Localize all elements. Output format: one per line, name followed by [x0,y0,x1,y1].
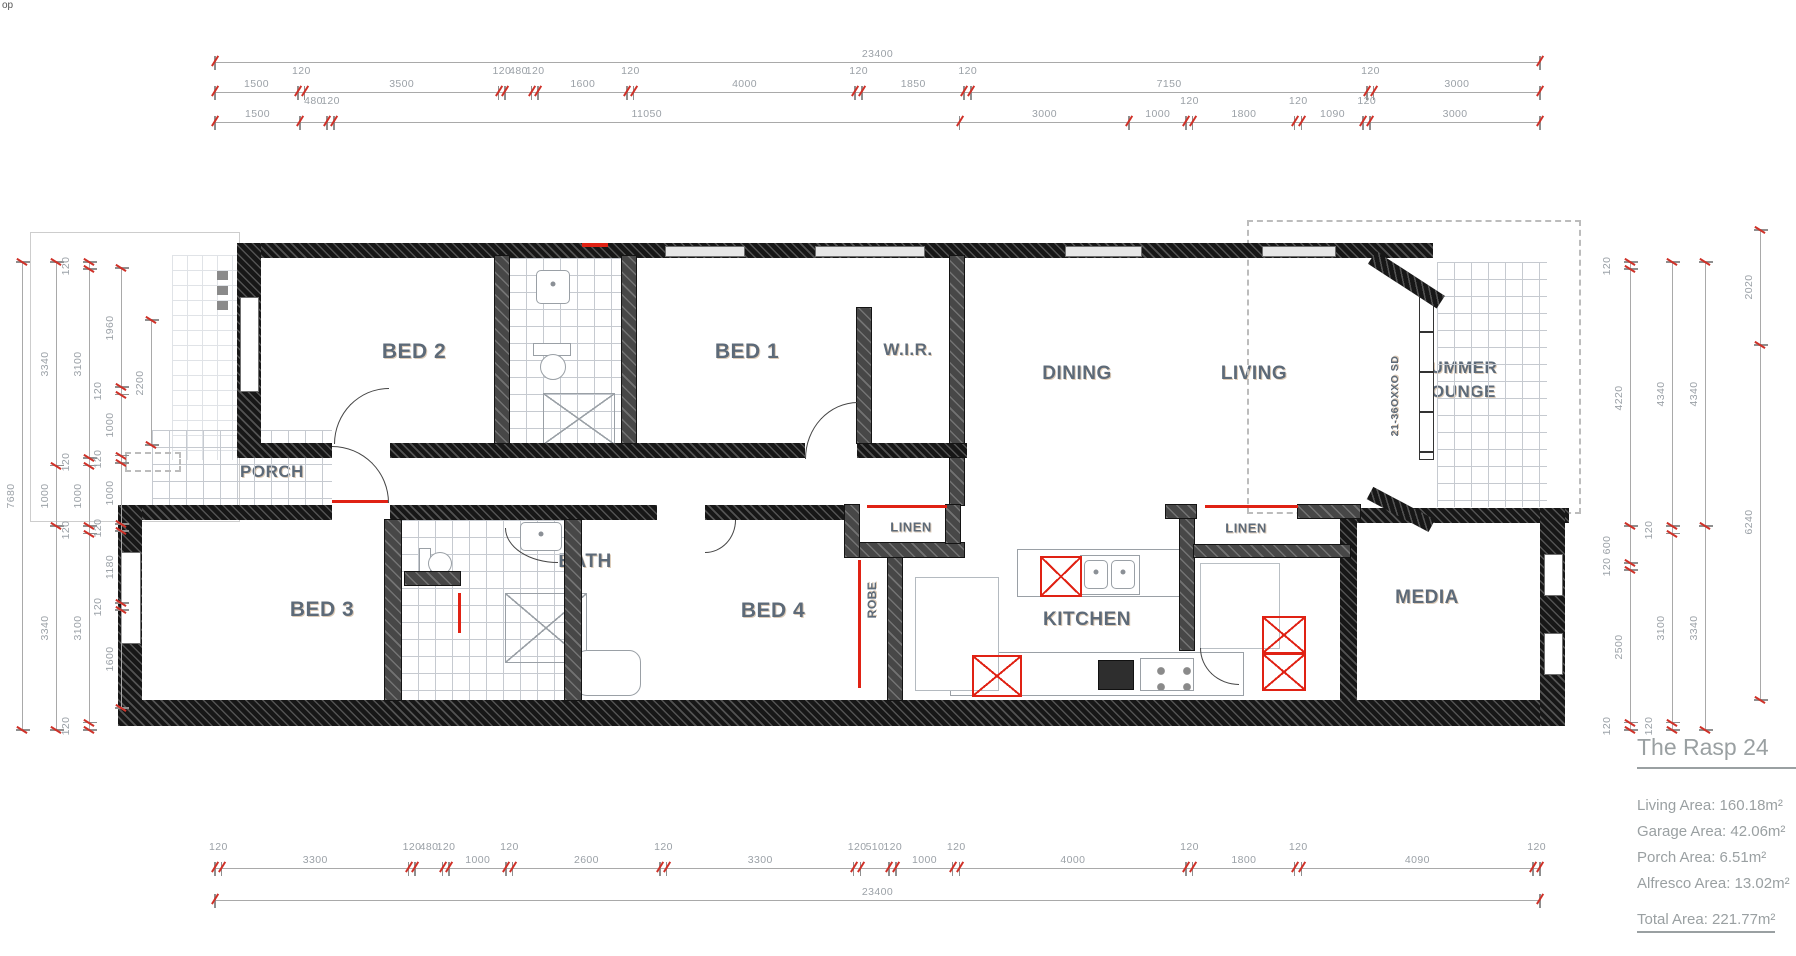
dim-tick [115,602,129,604]
dim-label: 120 [1289,95,1308,107]
dim-right-chain1: 12042206001202500120 [1630,262,1631,730]
dim-label: 120 [60,521,72,540]
dim-top-row2: 1500120350012048012016001204000120185012… [215,92,1540,93]
dim-tick [1532,862,1534,876]
wall-upper-bottom-b [390,443,805,458]
dim-label: 4340 [1655,382,1667,407]
dim-label: 4220 [1613,385,1625,410]
window-bed3-left [121,552,141,644]
dim-right-overall: 20206240 [1760,230,1761,700]
room-label-bed1: BED 1 [715,340,779,364]
room-label-dining: DINING [1042,363,1112,385]
red-bed3-robe-slider [458,593,461,633]
wall-upper-bottom-a [237,443,332,458]
dim-tick [1128,116,1130,130]
wall-lower-bottom [118,700,1565,726]
dim-label: 120 [321,95,340,107]
dim-label: 1000 [39,484,51,509]
dim-tick [414,862,416,876]
dim-label: 7680 [5,484,17,509]
dim-tick [959,116,961,130]
dim-tick [1192,862,1194,876]
dim-label: 1800 [1231,108,1256,120]
dim-tick [1754,229,1768,231]
room-label-linen-a: LINEN [890,520,932,535]
dim-tick [83,261,97,263]
dim-tick [853,862,855,876]
dim-label: 3300 [748,854,773,866]
dim-label: 11050 [632,108,662,120]
dim-tick [115,609,129,611]
porch-area-line: Porch Area: 6.51m² [1637,845,1796,871]
dim-tick [16,261,30,263]
dim-tick [626,86,628,100]
room-label-robe: ROBE [865,582,879,619]
dim-label: 120 [500,841,519,853]
dim-label: 1000 [465,854,490,866]
dim-tick [1185,116,1187,130]
dim-label: 480 [304,95,323,107]
dim-label: 1000 [72,484,84,509]
dim-label: 1000 [104,413,116,438]
meter-box-0 [217,271,228,280]
room-label-bed3: BED 3 [290,598,354,622]
dim-label: 1600 [104,647,116,672]
dim-tick [448,862,450,876]
dim-tick [214,56,216,70]
dim-label: 1180 [104,555,116,579]
dim-label: 120 [92,450,104,469]
dim-label: 480 [420,841,439,853]
sink-bowl-left [1084,560,1108,589]
dim-tick [1624,268,1638,270]
bathtub [575,650,641,696]
dim-tick [1185,862,1187,876]
dim-tick [1539,56,1541,70]
room-label-kitchen: KITCHEN [1043,609,1131,631]
dim-label: 120 [1601,557,1613,576]
dim-label: 2500 [1613,634,1625,659]
room-label-bed2: BED 2 [382,340,446,364]
dim-tick [214,894,216,908]
dim-tick [512,862,514,876]
dim-label: 120 [1180,95,1199,107]
dim-left-window: 2200 [151,320,152,445]
dim-label: 120 [1357,95,1376,107]
dim-tick [115,530,129,532]
window-top-3 [1065,246,1142,257]
dim-left-chain2: 334010003340 [56,262,57,730]
part-bed1-wir [857,308,871,443]
dim-label: 120 [1180,841,1199,853]
dim-label: 120 [60,256,72,275]
dim-label: 2600 [574,854,599,866]
dim-label: 4000 [732,78,757,90]
dim-label: 120 [1601,256,1613,275]
dim-tick [1362,116,1364,130]
window-media-1 [1544,554,1563,596]
dim-label: 1500 [245,108,270,120]
part-linen-b-bottom [1194,545,1350,557]
dim-label: 510 [866,841,885,853]
dim-label: 120 [621,65,640,77]
dim-left-overall: 7680 [22,262,23,730]
dim-right-chain3: 43403340 [1705,262,1706,730]
dim-label: 120 [849,65,868,77]
dim-tick [1699,261,1713,263]
dim-label: 1600 [570,78,595,90]
window-bed2-left [240,297,259,392]
dim-tick [1539,86,1541,100]
dim-label: 1000 [1145,108,1170,120]
dim-label: 120 [92,597,104,616]
dim-tick [115,523,129,525]
title-block: The Rasp 24 Living Area: 160.18m² Garage… [1637,734,1796,933]
dim-tick [1301,862,1303,876]
island-xbox [972,655,1022,697]
part-linen-b-stub-r [1298,505,1360,518]
part-bed3-bath [385,520,401,700]
red-linen-b-slider [1205,505,1298,508]
part-bath-bed4 [565,520,581,700]
dim-label: 7150 [1157,78,1182,90]
dim-tick [633,86,635,100]
dim-tick [1624,562,1638,564]
dim-label: 120 [654,841,673,853]
dim-tick [1624,525,1638,527]
dim-tick [1699,525,1713,527]
dim-tick [1539,894,1541,908]
alfresco-dashed-outline [1247,220,1581,514]
dim-tick [666,862,668,876]
dim-label: 120 [92,518,104,537]
room-label-bed4: BED 4 [741,599,805,623]
dim-label: 4090 [1405,854,1430,866]
part-wir-dining [950,256,964,443]
dim-label: 23400 [862,48,893,60]
dim-tick [1754,699,1768,701]
part-ens-bed1 [622,256,636,443]
dim-label: 3340 [1688,616,1700,641]
dim-label: 1850 [901,78,926,90]
dim-tick [888,862,890,876]
dim-tick [659,862,661,876]
window-top-1 [665,246,745,257]
dim-tick [1666,525,1680,527]
red-linen-a-slider [867,505,947,508]
room-label-linen-b: LINEN [1225,521,1267,536]
dim-tick [16,729,30,731]
dim-label: 1000 [104,481,116,506]
dim-label: 4340 [1688,382,1700,407]
dim-label: 2020 [1743,275,1755,300]
dim-tick [952,862,954,876]
dim-tick [1666,729,1680,731]
dim-label: 120 [60,453,72,472]
dim-label: 120 [1643,521,1655,540]
dim-tick [854,86,856,100]
floorplan-sheet: op BED 2 BED 1 W.I.R. DINING LIVING SUMM… [0,0,1796,956]
dim-label: 3000 [1032,108,1057,120]
dim-tick [1539,116,1541,130]
dim-tick [214,116,216,130]
dim-label: 1000 [912,854,937,866]
part-linen-b-stub-l [1166,505,1196,518]
dim-tick [145,319,159,321]
dim-tick [83,722,97,724]
living-area-line: Living Area: 160.18m² [1637,793,1796,819]
ensuite-vanity-basin [536,270,570,304]
corner-crop-text: op [2,0,13,11]
dim-tick [861,86,863,100]
dim-tick [1666,722,1680,724]
dim-tick [1624,722,1638,724]
dim-tick [442,862,444,876]
dim-label: 6240 [1743,510,1755,535]
ensuite-toilet-bowl [540,354,566,380]
dim-tick [408,862,410,876]
dim-tick [1294,116,1296,130]
bed1-door-arc [805,402,858,459]
wall-media-left [1340,508,1357,700]
red-robe-slider [858,560,861,688]
dim-label: 120 [60,717,72,736]
garage-area-line: Garage Area: 42.06m² [1637,819,1796,845]
dim-label: 120 [848,841,867,853]
dim-tick [1294,862,1296,876]
dim-tick [214,86,216,100]
dim-label: 120 [437,841,456,853]
wall-media-right [1540,508,1565,726]
dim-label: 3000 [1443,108,1468,120]
washer-xbox [1262,616,1306,654]
part-linen-a-right [946,505,960,543]
dim-left-chain3: 120310012010001203100120 [89,262,90,730]
dim-bottom-row1: 1203300120480120100012026001203300120510… [215,868,1540,869]
cooktop [1140,658,1194,691]
dryer-xbox [1262,653,1306,691]
part-linen-a-bottom [857,543,964,557]
dim-label: 120 [1527,841,1546,853]
dim-tick [963,86,965,100]
sink-bowl-right [1111,560,1135,589]
dim-label: 120 [1361,65,1380,77]
dim-label: 3500 [389,78,414,90]
alfresco-area-line: Alfresco Area: 13.02m² [1637,871,1796,897]
part-bed2-ens [495,256,509,443]
dim-tick [1369,116,1371,130]
total-area-line: Total Area: 221.77m² [1637,911,1775,933]
dim-tick [299,116,301,130]
dim-label: 120 [1601,717,1613,736]
dim-tick [498,86,500,100]
dim-tick [83,268,97,270]
dim-tick [115,386,129,388]
dim-tick [115,267,129,269]
dim-tick [895,862,897,876]
dim-label: 120 [947,841,966,853]
dim-tick [326,116,328,130]
dim-label: 3100 [72,351,84,376]
part-linen-a-left [845,505,859,557]
dim-tick [297,86,299,100]
dim-right-chain2: 43401203100120 [1672,262,1673,730]
ensuite-shower [543,393,615,445]
dim-tick [504,86,506,100]
dim-tick [115,462,129,464]
dim-tick [83,729,97,731]
part-bed3-robe-nook [405,572,460,585]
dim-top-overall: 23400 [215,62,1540,63]
dim-label: 1800 [1231,854,1256,866]
dim-tick [214,862,216,876]
entry-door-arc [332,446,389,503]
dim-tick [531,86,533,100]
meter-box-2 [217,301,228,310]
dim-tick [959,862,961,876]
dim-label: 3100 [1655,616,1667,641]
dim-tick [860,862,862,876]
dim-tick [1192,116,1194,130]
dim-label: 120 [958,65,977,77]
pantry-xbox [1040,556,1082,597]
wall-lower-top-c [705,505,857,520]
dim-tick [1624,261,1638,263]
dim-label: 120 [292,65,311,77]
dim-label: 3300 [303,854,328,866]
dim-label: 120 [92,382,104,401]
part-robe-wip [888,557,902,700]
dim-tick [1666,261,1680,263]
dim-label: 3000 [1444,78,1469,90]
window-media-2 [1544,633,1563,675]
dim-tick [1624,569,1638,571]
dim-tick [1699,729,1713,731]
dim-tick [1754,344,1768,346]
dim-tick [115,394,129,396]
dim-label: 600 [1601,535,1613,554]
dim-tick [537,86,539,100]
dim-tick [221,862,223,876]
oven [1098,660,1134,690]
dim-tick [970,86,972,100]
wall-lower-top-b [390,505,657,520]
dim-tick [1301,116,1303,130]
wall-upper-bottom-c [857,443,967,458]
dim-tick [115,455,129,457]
dim-tick [505,862,507,876]
dim-label: 120 [1643,717,1655,736]
dim-tick [1539,862,1541,876]
wall-lower-top-a [118,505,332,520]
dim-label: 1500 [244,78,269,90]
dim-label: 3340 [39,351,51,376]
kitchen-sink [1080,555,1140,595]
dim-tick [115,707,129,709]
dim-tick [333,116,335,130]
part-ldy-left [1180,505,1194,650]
part-hall-stub [950,458,964,505]
dim-label: 4000 [1060,854,1085,866]
plan-title: The Rasp 24 [1637,734,1796,769]
dim-tick [1666,533,1680,535]
porch-step-dashed [125,452,181,472]
dim-top-row3: 1500480120110503000100012018001201090120… [215,122,1540,123]
dim-label: 120 [1289,841,1308,853]
window-top-4 [1262,246,1336,257]
dim-label: 1090 [1320,108,1345,120]
dim-left-chain4: 19601201000120100012011801201600 [121,268,122,708]
dim-label: 120 [883,841,902,853]
dim-tick [145,444,159,446]
room-label-media: MEDIA [1395,587,1459,609]
dim-bottom-overall: 23400 [215,900,1540,901]
dim-label: 120 [209,841,228,853]
dim-label: 3340 [39,616,51,641]
bed2-door-arc [334,388,389,444]
dim-label: 120 [526,65,545,77]
red-ens-wall-mark [582,243,608,247]
room-label-wir: W.I.R. [883,340,932,360]
dim-label: 3100 [72,616,84,641]
dim-tick [1624,729,1638,731]
dim-label: 120 [403,841,422,853]
bed4-door-arc [705,520,736,553]
area-summary: Living Area: 160.18m² Garage Area: 42.06… [1637,793,1796,897]
window-top-2 [815,246,925,257]
dim-label: 1960 [104,315,116,340]
meter-box-1 [217,286,228,295]
dim-label: 23400 [862,886,893,898]
summer-lounge-stacker-door [1419,292,1434,460]
dim-label: 2200 [134,370,146,395]
